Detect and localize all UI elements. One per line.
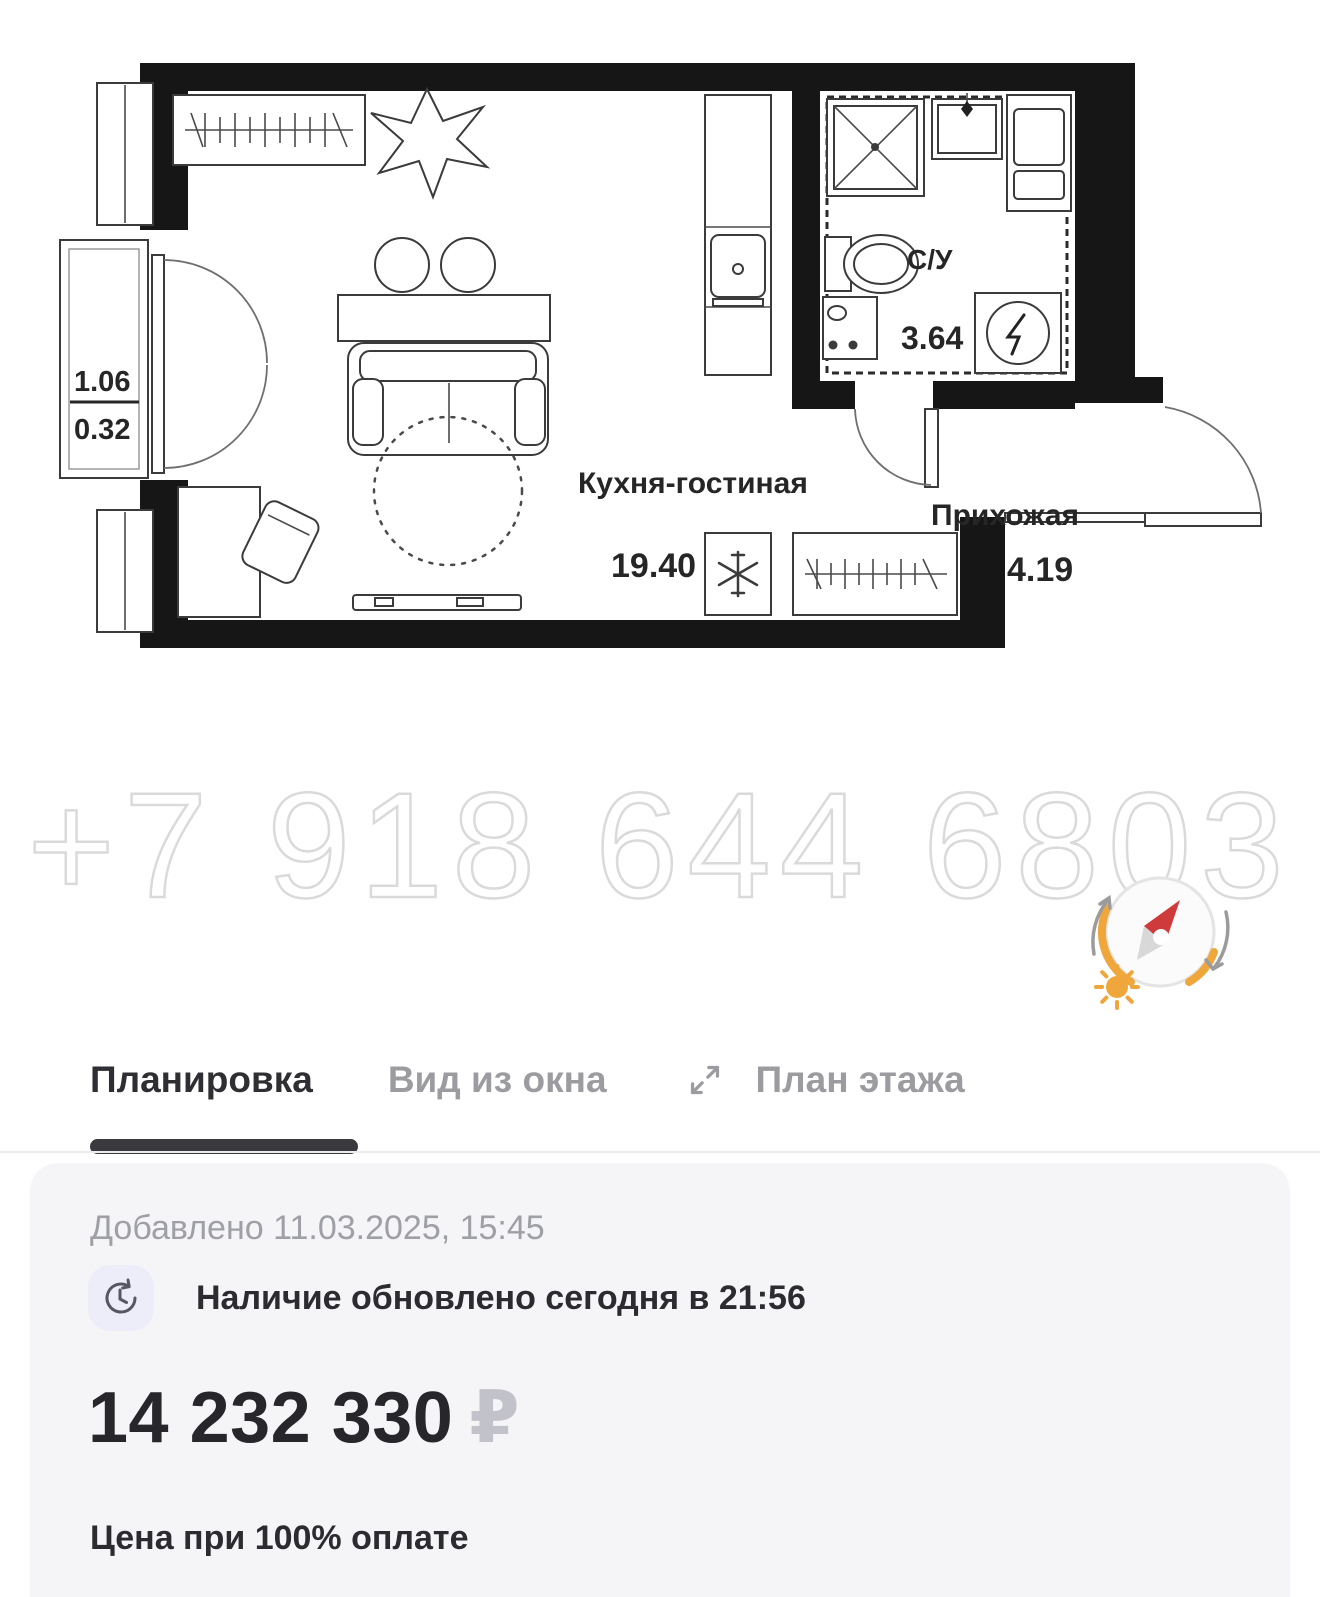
history-clock-icon [99,1276,143,1320]
bathroom-label: С/У [907,244,953,275]
kitchen-counter [705,95,771,375]
table [338,295,550,341]
listing-info-card: Добавлено 11.03.2025, 15:45 Наличие обно… [30,1163,1290,1597]
tab-divider [0,1151,1320,1153]
floor-plan-tab-group: План этажа [682,1057,965,1103]
tab-layout[interactable]: Планировка [90,1059,313,1101]
price: 14 232 330₽ [88,1375,520,1459]
tab-window-view[interactable]: Вид из окна [388,1059,607,1101]
tv-console [353,595,521,610]
plant-icon [371,89,487,197]
window-top [97,83,153,225]
added-date-label: Добавлено 11.03.2025, 15:45 [90,1209,545,1248]
water-heater [975,293,1061,373]
stools [375,238,495,292]
history-clock-icon-box [88,1265,154,1331]
bathroom-area: 3.64 [901,320,963,356]
balcony: 1.06 0.32 [60,240,148,478]
tab-bar: Планировка Вид из окна План этажа [90,1057,965,1103]
window-bottom [97,510,153,632]
washing-machine [1007,95,1071,211]
compass-icon[interactable] [1080,856,1240,1016]
living-room-label: Кухня-гостиная [578,467,808,500]
balcony-doors [152,255,267,473]
fridge [705,533,771,615]
payment-note: Цена при 100% оплате [90,1519,468,1558]
sun-icon [1096,966,1138,1008]
shower [827,99,924,196]
wardrobe-living [173,95,365,165]
bath-sink [932,93,1002,159]
balcony-area-lower: 0.32 [74,414,130,446]
living-room-area: 19.40 [611,547,696,585]
availability-text: Наличие обновлено сегодня в 21:56 [196,1279,806,1318]
balcony-area-upper: 1.06 [74,366,130,398]
toilet [825,235,918,293]
bathroom-door [855,409,938,487]
availability-row: Наличие обновлено сегодня в 21:56 [88,1265,806,1331]
currency-symbol: ₽ [469,1378,520,1458]
sofa [348,343,548,455]
plumbing-unit [823,297,877,359]
wardrobe-hall [793,533,957,615]
hall-label: Прихожая [931,499,1079,532]
tab-floor-plan[interactable]: План этажа [756,1059,965,1101]
expand-icon[interactable] [682,1057,728,1103]
floor-plan-image[interactable]: 1.06 0.32 [55,55,1265,655]
price-value: 14 232 330 [88,1378,453,1458]
hall-area: 4.19 [1007,551,1073,589]
